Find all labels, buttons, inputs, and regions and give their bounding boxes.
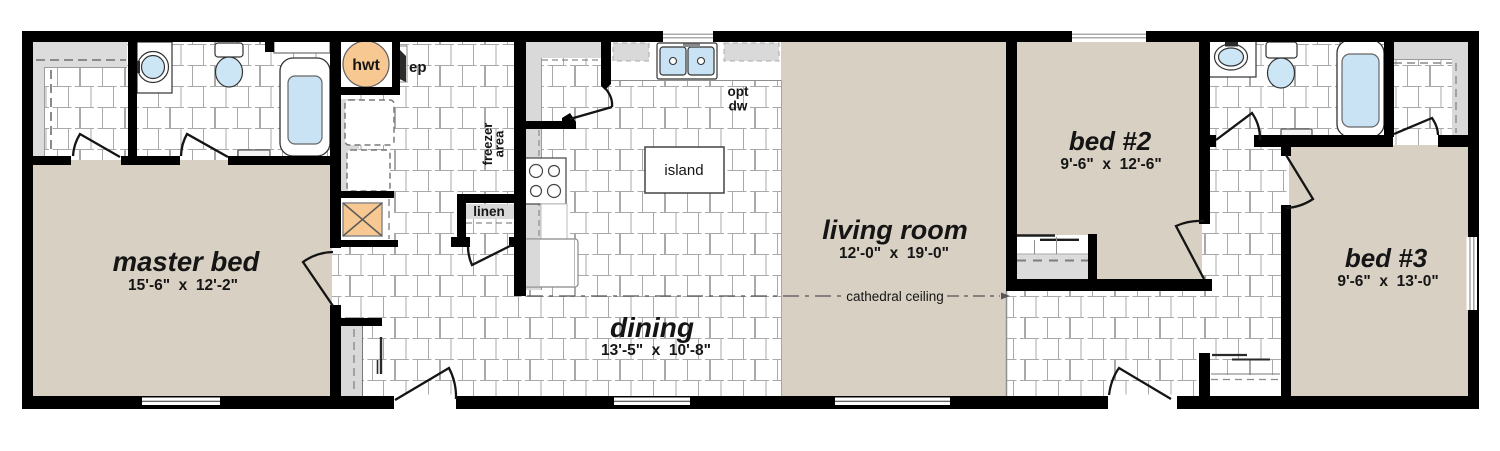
svg-text:opt: opt (728, 84, 749, 99)
svg-text:area: area (492, 130, 507, 158)
svg-text:dining: dining (610, 312, 694, 343)
svg-text:hwt: hwt (352, 57, 380, 74)
svg-text:island: island (664, 162, 703, 179)
svg-text:master bed: master bed (113, 246, 261, 277)
svg-text:linen: linen (473, 204, 505, 219)
svg-text:15'-6" x 12'-2": 15'-6" x 12'-2" (128, 277, 238, 294)
svg-text:13'-5" x 10'-8": 13'-5" x 10'-8" (601, 342, 711, 359)
svg-text:bed #3: bed #3 (1345, 243, 1428, 273)
svg-text:12'-0" x 19'-0": 12'-0" x 19'-0" (839, 245, 949, 262)
svg-text:living room: living room (822, 215, 968, 245)
svg-text:bed #2: bed #2 (1069, 126, 1152, 156)
svg-text:9'-6" x 13'-0": 9'-6" x 13'-0" (1337, 273, 1438, 290)
svg-text:dw: dw (729, 99, 748, 114)
svg-text:cathedral ceiling: cathedral ceiling (846, 289, 944, 304)
svg-text:ep: ep (409, 59, 427, 76)
svg-text:9'-6" x 12'-6": 9'-6" x 12'-6" (1060, 156, 1161, 173)
